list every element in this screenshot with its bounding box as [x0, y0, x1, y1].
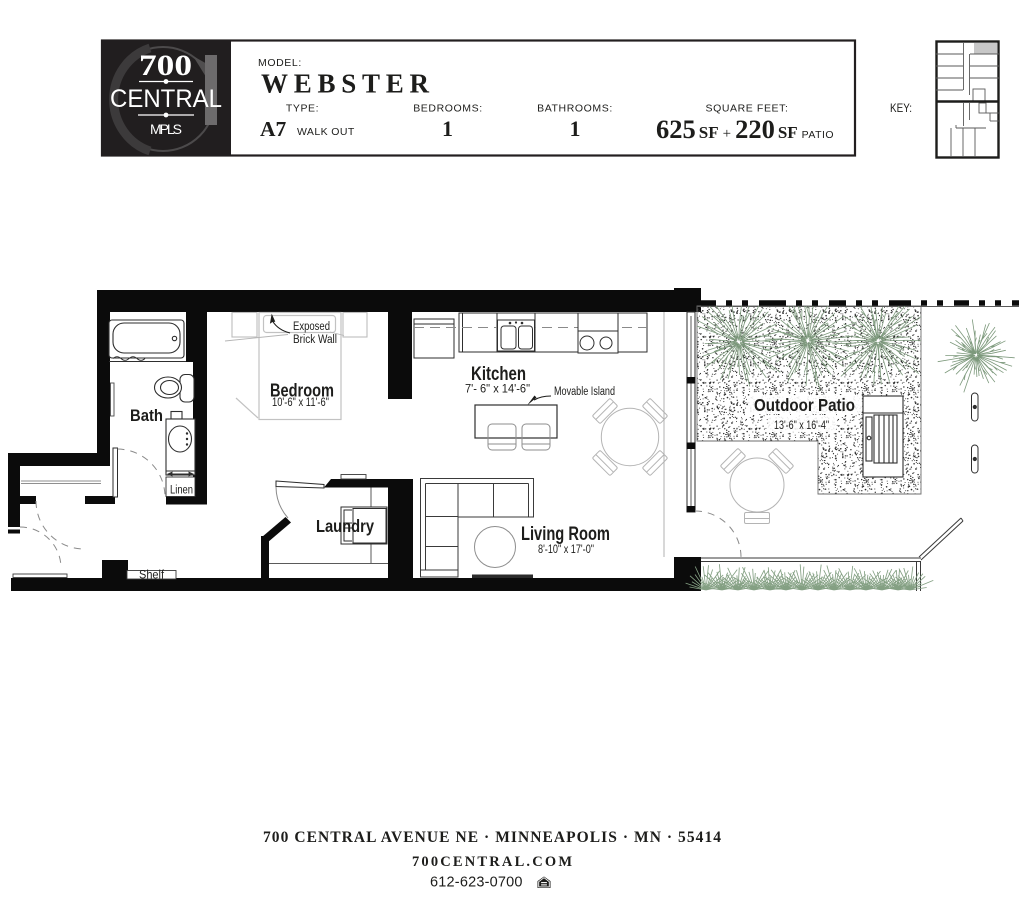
svg-text:A7: A7	[260, 117, 287, 141]
svg-text:KEY:: KEY:	[890, 103, 912, 115]
svg-text:TYPE:: TYPE:	[286, 103, 319, 115]
svg-text:Kitchen: Kitchen	[471, 364, 526, 385]
svg-text:Exposed: Exposed	[293, 321, 330, 333]
svg-text:MODEL:: MODEL:	[258, 57, 302, 69]
svg-text:7'- 6" x 14'-6": 7'- 6" x 14'-6"	[465, 384, 530, 396]
svg-text:SQUARE FEET:: SQUARE FEET:	[705, 103, 788, 115]
svg-text:8'-10" x 17'-0": 8'-10" x 17'-0"	[538, 544, 594, 556]
svg-text:WALK OUT: WALK OUT	[297, 126, 355, 138]
svg-text:700 CENTRAL AVENUE NE · MINNEA: 700 CENTRAL AVENUE NE · MINNEAPOLIS · MN…	[263, 829, 721, 846]
svg-text:700: 700	[139, 49, 192, 82]
svg-text:612-623-0700: 612-623-0700	[430, 875, 523, 891]
svg-text:700CENTRAL.COM: 700CENTRAL.COM	[412, 854, 572, 870]
svg-text:Outdoor Patio: Outdoor Patio	[754, 395, 855, 415]
svg-text:Laundry: Laundry	[316, 516, 374, 536]
svg-text:10'-6" x 11'-6": 10'-6" x 11'-6"	[272, 397, 329, 409]
svg-text:Linen: Linen	[170, 485, 193, 497]
svg-text:13'-6" x 16'-4": 13'-6" x 16'-4"	[774, 420, 829, 432]
svg-text:Shelf: Shelf	[139, 570, 165, 582]
svg-text:Bath: Bath	[130, 406, 163, 425]
svg-text:BEDROOMS:: BEDROOMS:	[413, 103, 483, 115]
svg-text:BATHROOMS:: BATHROOMS:	[537, 103, 613, 115]
svg-text:1: 1	[442, 116, 453, 141]
svg-text:CENTRAL: CENTRAL	[110, 85, 222, 113]
svg-text:Living Room: Living Room	[521, 524, 610, 545]
svg-text:MPLS: MPLS	[150, 121, 182, 137]
svg-text:Brick Wall: Brick Wall	[293, 334, 337, 346]
svg-text:1: 1	[570, 116, 581, 141]
svg-text:Movable Island: Movable Island	[554, 386, 615, 398]
